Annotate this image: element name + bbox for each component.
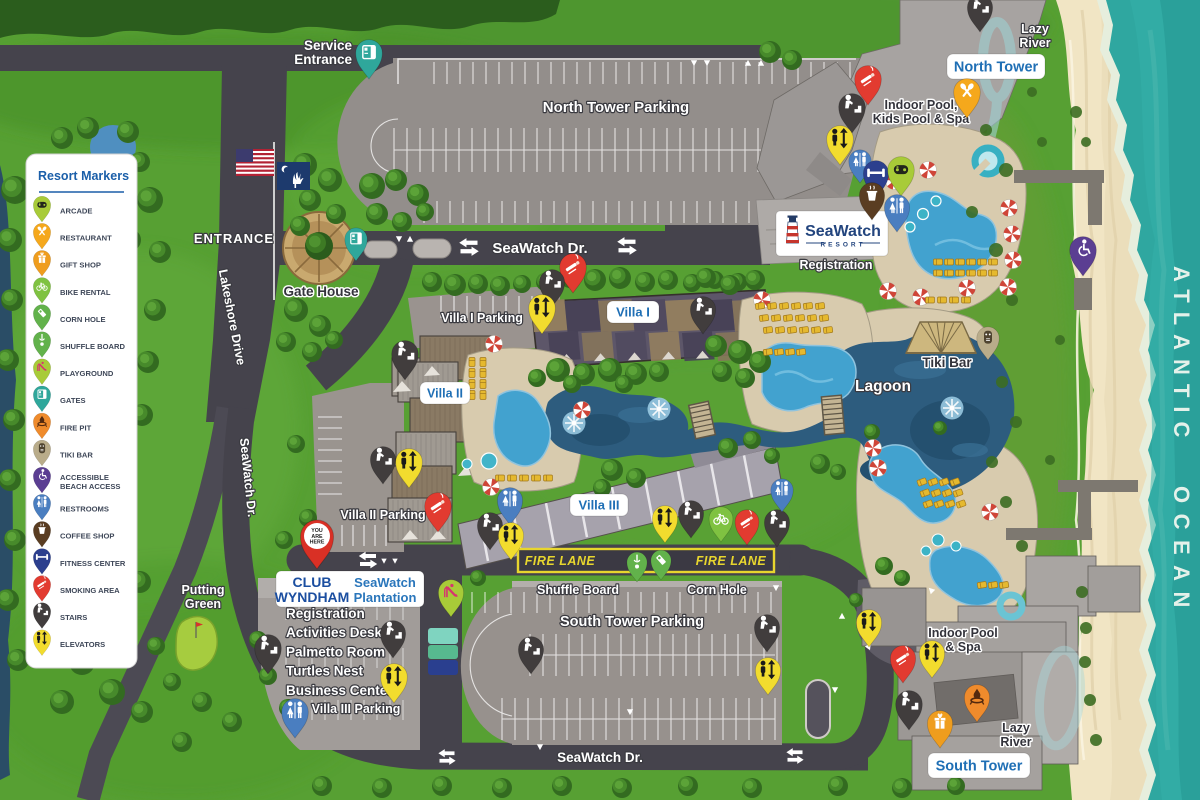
svg-text:North Tower Parking: North Tower Parking (543, 99, 689, 116)
svg-text:Corn Hole: Corn Hole (687, 583, 747, 597)
svg-text:Lazy: Lazy (1002, 721, 1030, 735)
svg-text:FITNESS CENTER: FITNESS CENTER (60, 559, 126, 568)
svg-text:South Tower: South Tower (936, 759, 1023, 775)
svg-text:SeaWatch Dr.: SeaWatch Dr. (557, 750, 643, 765)
svg-text:PLAYGROUND: PLAYGROUND (60, 369, 114, 378)
svg-text:RESORT: RESORT (820, 242, 865, 249)
svg-text:COFFEE SHOP: COFFEE SHOP (60, 532, 114, 541)
svg-text:& Spa: & Spa (945, 640, 981, 654)
svg-text:Registration: Registration (286, 606, 365, 621)
svg-text:Villa II: Villa II (427, 386, 463, 400)
svg-text:SeaWatch: SeaWatch (354, 575, 416, 590)
svg-text:ARCADE: ARCADE (60, 207, 93, 216)
svg-text:Resort Markers: Resort Markers (38, 169, 129, 183)
svg-text:GIFT SHOP: GIFT SHOP (60, 261, 101, 270)
svg-text:Lazy: Lazy (1021, 22, 1049, 36)
svg-text:TIKI BAR: TIKI BAR (60, 450, 93, 459)
svg-text:OCEAN: OCEAN (1169, 486, 1194, 618)
svg-text:Shuffle Board: Shuffle Board (537, 583, 619, 597)
svg-text:SeaWatch: SeaWatch (805, 223, 881, 240)
svg-text:Service: Service (304, 38, 353, 53)
svg-text:RESTAURANT: RESTAURANT (60, 234, 112, 243)
svg-text:FIRE PIT: FIRE PIT (60, 423, 92, 432)
svg-text:Tiki Bar: Tiki Bar (922, 355, 972, 370)
svg-text:Activities Desk: Activities Desk (286, 625, 383, 640)
svg-text:ENTRANCE: ENTRANCE (194, 231, 274, 246)
svg-text:STAIRS: STAIRS (60, 613, 87, 622)
svg-text:ELEVATORS: ELEVATORS (60, 640, 105, 649)
svg-text:Indoor Pool,: Indoor Pool, (885, 98, 958, 112)
svg-text:Business Center: Business Center (286, 683, 393, 698)
svg-text:Indoor Pool: Indoor Pool (928, 626, 997, 640)
svg-text:South Tower Parking: South Tower Parking (560, 614, 704, 630)
svg-text:North Tower: North Tower (954, 60, 1039, 76)
svg-text:HERE: HERE (310, 540, 325, 546)
svg-text:GATES: GATES (60, 396, 86, 405)
svg-text:ACCESSIBLE: ACCESSIBLE (60, 473, 109, 482)
svg-text:FIRE LANE: FIRE LANE (525, 554, 596, 568)
svg-text:BEACH ACCESS: BEACH ACCESS (60, 482, 120, 491)
svg-text:Kids Pool & Spa: Kids Pool & Spa (873, 112, 971, 126)
svg-text:River: River (1000, 735, 1031, 749)
svg-text:ATLANTIC: ATLANTIC (1169, 266, 1194, 446)
svg-text:Plantation: Plantation (354, 590, 417, 605)
svg-text:Palmetto Room: Palmetto Room (286, 644, 385, 659)
svg-text:Green: Green (185, 597, 221, 611)
svg-text:Registration: Registration (800, 258, 873, 272)
svg-text:RESTROOMS: RESTROOMS (60, 505, 109, 514)
svg-text:WYNDHAM: WYNDHAM (275, 589, 350, 605)
svg-text:Villa II Parking: Villa II Parking (340, 508, 425, 522)
svg-text:Gate House: Gate House (283, 284, 359, 299)
svg-text:Villa I Parking: Villa I Parking (441, 311, 523, 325)
svg-text:FIRE LANE: FIRE LANE (696, 554, 767, 568)
svg-text:CORN HOLE: CORN HOLE (60, 315, 106, 324)
svg-text:CLUB: CLUB (293, 574, 332, 590)
svg-text:River: River (1019, 36, 1050, 50)
svg-text:BIKE RENTAL: BIKE RENTAL (60, 288, 111, 297)
svg-text:Turtles Nest: Turtles Nest (286, 664, 364, 679)
svg-text:Villa III: Villa III (579, 498, 620, 513)
svg-text:Putting: Putting (181, 583, 224, 597)
svg-text:SMOKING AREA: SMOKING AREA (60, 586, 120, 595)
svg-text:Lagoon: Lagoon (855, 378, 911, 395)
svg-text:Entrance: Entrance (294, 52, 352, 67)
svg-text:Villa III Parking: Villa III Parking (312, 702, 401, 716)
svg-text:Villa I: Villa I (616, 305, 650, 320)
svg-text:SHUFFLE BOARD: SHUFFLE BOARD (60, 342, 125, 351)
